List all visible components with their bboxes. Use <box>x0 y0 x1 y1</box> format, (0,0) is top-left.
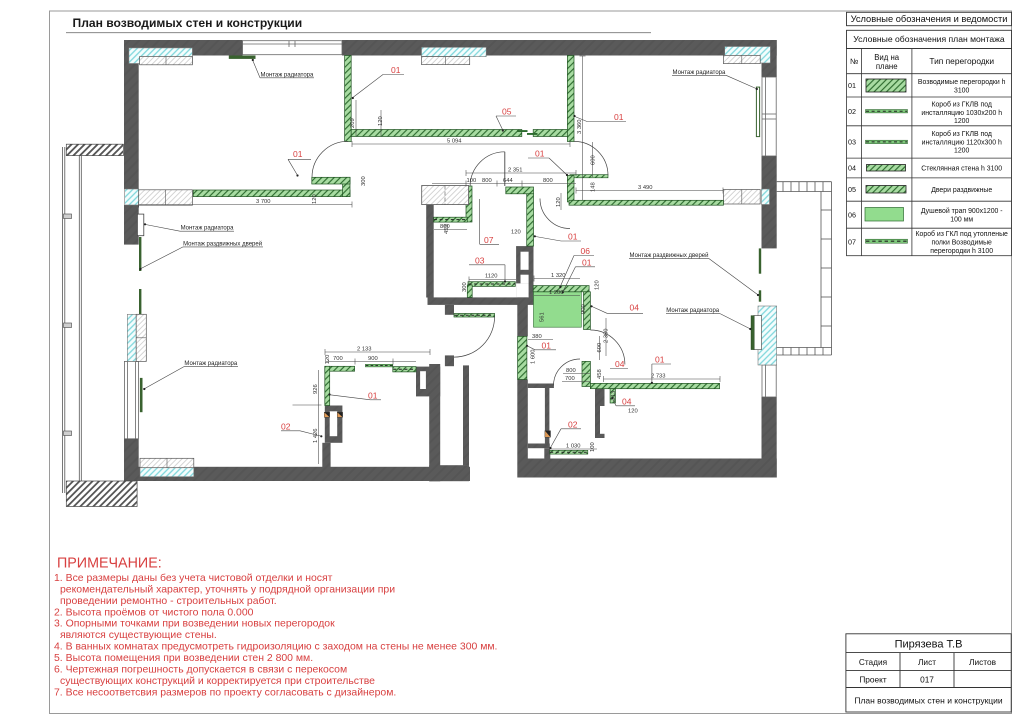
svg-text:120: 120 <box>378 116 384 126</box>
svg-text:05: 05 <box>848 185 856 194</box>
svg-text:120: 120 <box>628 409 638 415</box>
svg-text:Листов: Листов <box>969 657 997 667</box>
svg-text:03: 03 <box>475 255 485 265</box>
svg-text:1200: 1200 <box>954 118 969 125</box>
svg-text:900: 900 <box>368 356 378 362</box>
svg-text:существующих конструкций и кор: существующих конструкций и корректируетс… <box>60 676 375 687</box>
svg-text:Душевой трап 900х1200 -: Душевой трап 900х1200 - <box>921 207 1003 215</box>
svg-text:01: 01 <box>848 81 856 90</box>
svg-text:01: 01 <box>293 149 303 159</box>
svg-text:Условные обозначения и ведомос: Условные обозначения и ведомости <box>851 14 1008 24</box>
svg-text:Короб из ГКЛВ под: Короб из ГКЛВ под <box>931 130 992 138</box>
svg-text:2 733: 2 733 <box>651 374 666 380</box>
svg-text:120: 120 <box>595 280 601 290</box>
svg-text:7. Все несоответсвия размеров: 7. Все несоответсвия размеров по проекту… <box>54 687 396 698</box>
svg-text:05: 05 <box>502 107 512 117</box>
svg-text:06: 06 <box>581 246 591 256</box>
svg-text:Короб из ГКЛ под утопленые: Короб из ГКЛ под утопленые <box>916 230 1009 238</box>
svg-text:01: 01 <box>542 340 552 350</box>
svg-text:313: 313 <box>611 391 617 401</box>
svg-text:01: 01 <box>614 112 624 122</box>
svg-text:1 426: 1 426 <box>313 428 319 443</box>
svg-text:800: 800 <box>566 368 576 374</box>
svg-text:02: 02 <box>281 421 291 431</box>
svg-text:2 360: 2 360 <box>604 328 610 343</box>
svg-text:Двери раздвижные: Двери раздвижные <box>931 187 992 194</box>
svg-text:План возводимых стен и констру: План возводимых стен и конструкции <box>854 696 1003 706</box>
svg-text:600: 600 <box>597 343 603 353</box>
svg-text:02: 02 <box>848 107 856 116</box>
svg-text:рекомендательный характер, уто: рекомендательный характер, уточнять у по… <box>60 584 395 595</box>
svg-text:Возводимые перегородки h: Возводимые перегородки h <box>918 79 1006 86</box>
svg-text:800: 800 <box>482 178 492 184</box>
svg-text:148: 148 <box>591 182 597 192</box>
svg-text:1 320: 1 320 <box>551 273 566 279</box>
svg-text:209: 209 <box>350 118 356 128</box>
svg-text:900: 900 <box>581 304 587 314</box>
svg-text:1 030: 1 030 <box>566 444 581 450</box>
svg-text:Стеклянная стена h 3100: Стеклянная стена h 3100 <box>921 165 1002 172</box>
svg-text:07: 07 <box>848 238 856 247</box>
svg-text:01: 01 <box>568 232 578 242</box>
svg-text:Монтаж раздвижных дверей: Монтаж раздвижных дверей <box>183 240 262 247</box>
svg-text:458: 458 <box>597 369 603 379</box>
svg-text:300: 300 <box>361 176 367 186</box>
svg-text:3100: 3100 <box>954 88 969 95</box>
svg-text:01: 01 <box>391 65 401 75</box>
svg-text:Короб из ГКЛВ под: Короб из ГКЛВ под <box>931 101 992 109</box>
svg-text:1200: 1200 <box>954 148 969 155</box>
svg-text:644: 644 <box>503 178 513 184</box>
svg-text:5. Высота помещения при возвед: 5. Высота помещения при возведении стен … <box>54 653 313 664</box>
svg-text:План возводимых стен и констру: План возводимых стен и конструкции <box>73 16 303 30</box>
svg-text:1 200: 1 200 <box>549 290 564 296</box>
svg-text:плане: плане <box>876 62 898 71</box>
svg-text:100: 100 <box>467 178 477 184</box>
svg-text:инсталляцию 1030х200 h: инсталляцию 1030х200 h <box>921 110 1002 117</box>
svg-text:6. Чертежная погрешность допус: 6. Чертежная погрешность допускается в с… <box>54 665 347 676</box>
svg-text:3 360: 3 360 <box>577 119 583 134</box>
svg-text:№: № <box>850 57 858 66</box>
svg-text:Монтаж радиатора: Монтаж радиатора <box>673 70 727 76</box>
svg-text:453: 453 <box>444 224 450 234</box>
svg-text:700: 700 <box>565 376 575 382</box>
svg-text:Условные обозначения план монт: Условные обозначения план монтажа <box>853 34 1005 44</box>
svg-text:600: 600 <box>591 155 597 165</box>
svg-text:Монтаж радиатора: Монтаж радиатора <box>181 226 235 232</box>
svg-text:04: 04 <box>615 359 625 369</box>
svg-text:120: 120 <box>325 355 331 365</box>
svg-text:Пирязева Т.В: Пирязева Т.В <box>895 639 963 651</box>
svg-text:перегородки h 3100: перегородки h 3100 <box>930 248 993 255</box>
svg-text:1. Все размеры даны без учета: 1. Все размеры даны без учета чистовой о… <box>54 572 333 584</box>
svg-text:4. В ванных комнатах предусмот: 4. В ванных комнатах предусмотреть гидро… <box>54 642 497 653</box>
svg-text:07: 07 <box>484 235 494 245</box>
svg-text:02: 02 <box>568 419 578 429</box>
svg-text:3 700: 3 700 <box>256 199 271 205</box>
svg-text:800: 800 <box>543 178 553 184</box>
svg-text:2 133: 2 133 <box>357 347 372 353</box>
svg-text:01: 01 <box>535 149 545 159</box>
svg-text:Монтаж радиатора: Монтаж радиатора <box>261 72 315 78</box>
svg-text:017: 017 <box>920 674 934 684</box>
svg-text:04: 04 <box>630 302 640 312</box>
svg-text:Вид на: Вид на <box>874 53 900 62</box>
svg-text:полки Возводимые: полки Возводимые <box>932 240 993 247</box>
svg-text:01: 01 <box>582 257 592 267</box>
svg-text:120: 120 <box>556 197 562 207</box>
svg-text:Монтаж раздвижных дверей: Монтаж раздвижных дверей <box>630 252 709 259</box>
svg-text:120: 120 <box>312 194 318 204</box>
svg-text:300: 300 <box>462 282 468 292</box>
svg-text:3. Опорными точками при возвед: 3. Опорными точками при возведении новых… <box>54 619 335 630</box>
svg-text:1120: 1120 <box>485 274 497 280</box>
svg-text:Стадия: Стадия <box>859 657 887 667</box>
svg-text:01: 01 <box>655 354 665 364</box>
svg-text:04: 04 <box>622 396 632 406</box>
svg-text:3 490: 3 490 <box>638 185 653 191</box>
svg-text:561: 561 <box>540 312 546 322</box>
svg-text:2. Высота проёмов от чистого п: 2. Высота проёмов от чистого пола 0.000 <box>54 607 254 618</box>
svg-text:03: 03 <box>848 138 856 147</box>
svg-text:Монтаж радиатора: Монтаж радиатора <box>184 361 238 367</box>
svg-text:Монтаж радиатора: Монтаж радиатора <box>666 308 720 314</box>
svg-text:ПРИМЕЧАНИЕ:: ПРИМЕЧАНИЕ: <box>57 556 162 572</box>
svg-text:5 094: 5 094 <box>447 139 462 145</box>
svg-text:Тип перегородки: Тип перегородки <box>929 56 994 66</box>
svg-text:2 351: 2 351 <box>508 168 523 174</box>
svg-text:04: 04 <box>848 164 856 173</box>
svg-text:проведении ремонтно - строител: проведении ремонтно - строительных работ… <box>60 595 277 607</box>
svg-text:1 600: 1 600 <box>531 349 537 364</box>
svg-text:100 мм: 100 мм <box>950 216 973 223</box>
svg-text:Лист: Лист <box>918 657 936 667</box>
svg-text:700: 700 <box>333 356 343 362</box>
svg-text:06: 06 <box>848 211 856 220</box>
svg-text:инсталляцию 1120х300 h: инсталляцию 1120х300 h <box>922 139 1002 146</box>
svg-text:Проект: Проект <box>859 674 887 684</box>
svg-text:380: 380 <box>532 334 542 340</box>
svg-text:являются существующие стены.: являются существующие стены. <box>60 630 217 641</box>
svg-text:120: 120 <box>511 230 521 236</box>
svg-text:926: 926 <box>313 384 319 394</box>
svg-text:01: 01 <box>368 390 378 400</box>
svg-text:100: 100 <box>590 442 596 452</box>
